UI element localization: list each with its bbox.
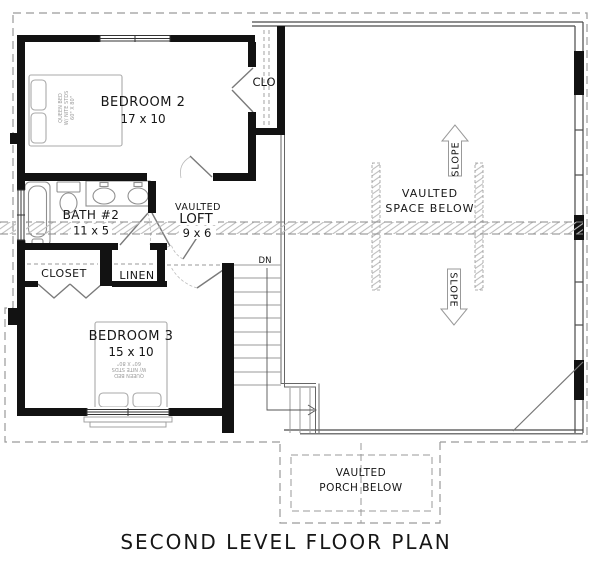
bedroom2-door-arc: [180, 157, 190, 178]
faucet-left: [100, 183, 108, 187]
closet-bifold-left: [38, 284, 70, 298]
bedroom3-door-arc: [171, 267, 197, 288]
pillow: [31, 80, 46, 110]
pillow: [99, 393, 128, 407]
stair-walk-line: [267, 268, 316, 415]
bedroom2-window: [100, 34, 170, 43]
west-wall-jog: [10, 133, 25, 144]
bed2-note-line3: 60" X 80": [70, 96, 76, 120]
linen-label: LINEN: [119, 269, 154, 282]
stairs: [234, 265, 310, 433]
sink-right: [128, 188, 148, 204]
vaulted-porch-line1: VAULTED: [336, 467, 386, 479]
bath-window: [16, 190, 26, 240]
plan-title: SECOND LEVEL FLOOR PLAN: [120, 530, 451, 554]
bedroom3-door-leaf: [197, 268, 226, 288]
hall-door-arc: [171, 244, 183, 259]
vaulted-space-line1: VAULTED: [402, 187, 458, 200]
faucet-right: [134, 183, 142, 187]
bedroom2-dims: 17 x 10: [120, 112, 165, 126]
loft-dims: 9 x 6: [183, 226, 212, 240]
vaulted-porch-line2: PORCH BELOW: [319, 482, 403, 494]
pillow: [133, 393, 161, 407]
bedroom3-dims: 15 x 10: [108, 345, 153, 359]
slope-down-label: SLOPE: [448, 272, 459, 307]
bedroom3-window: [84, 407, 172, 427]
west-wall-jog: [8, 308, 25, 325]
closet-bifold-right: [70, 284, 102, 298]
pillow: [31, 113, 46, 143]
clo-door-leaf: [232, 68, 253, 88]
bedroom3-label: BEDROOM 3: [89, 329, 174, 344]
sink-left: [93, 188, 115, 204]
slope-arrow-down: SLOPE: [441, 269, 467, 325]
window-sill: [84, 417, 172, 422]
vaulted-space-line2: SPACE BELOW: [385, 202, 474, 215]
stair-wall: [222, 263, 234, 433]
stair-treads-upper: [234, 265, 281, 385]
bed3-note-line3: 60" X 80": [117, 360, 141, 366]
stair-treads-lower: [290, 388, 310, 433]
clo-door-leaf: [232, 90, 253, 112]
clo-label: CLO: [252, 75, 275, 89]
bath2-label: BATH #2: [63, 208, 120, 222]
floor-plan-drawing: SLOPE SLOPE BEDROOM 2 17 x 10 CLO BATH #…: [0, 0, 600, 564]
stairs-dn-label: DN: [259, 256, 272, 266]
closet-label: CLOSET: [41, 267, 87, 280]
slope-arrow-up: SLOPE: [442, 125, 468, 177]
window-sill: [90, 422, 166, 427]
toilet-tank: [57, 182, 80, 192]
bedroom2-door-leaf: [190, 156, 212, 177]
bath2-dims: 11 x 5: [73, 224, 109, 238]
loft-label: LOFT: [179, 211, 213, 227]
roof-vault-diagonal-line: [513, 362, 583, 431]
floor-plan-page: SLOPE SLOPE BEDROOM 2 17 x 10 CLO BATH #…: [0, 0, 600, 564]
slope-up-label: SLOPE: [451, 141, 462, 176]
bedroom2-label: BEDROOM 2: [101, 95, 186, 110]
